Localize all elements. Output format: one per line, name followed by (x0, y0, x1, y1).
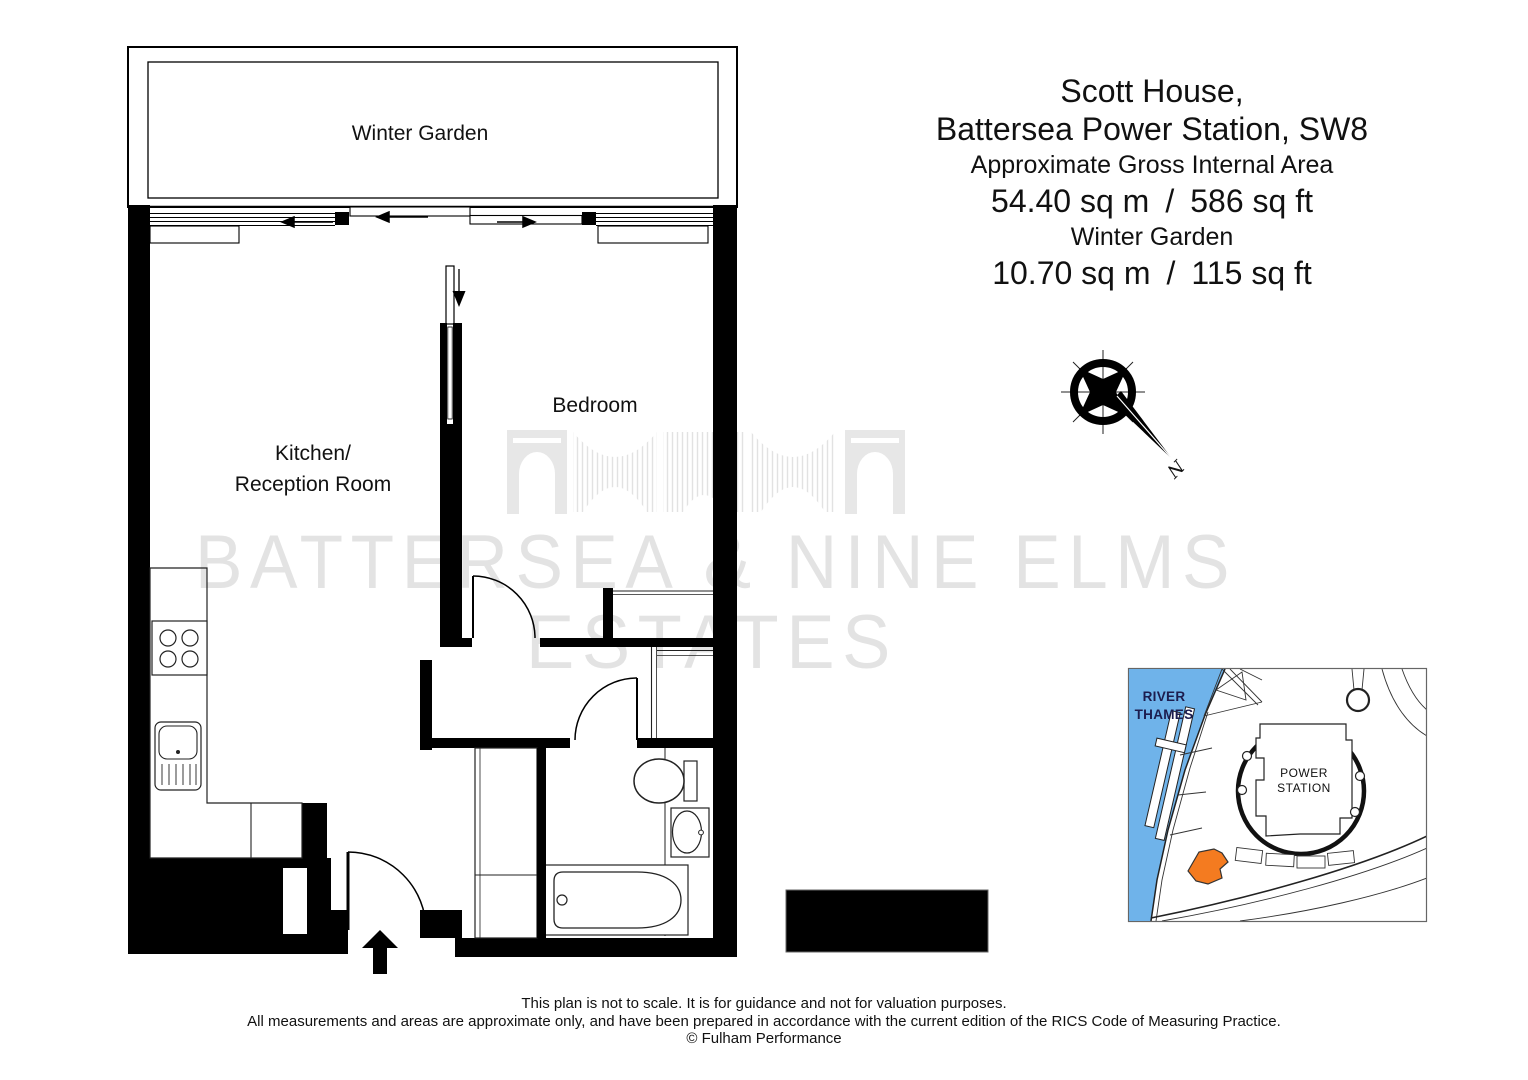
title-block: Scott House, Battersea Power Station, SW… (852, 72, 1452, 292)
property-title-line1: Scott House, (852, 72, 1452, 110)
station-label-line1: POWER (1280, 766, 1328, 780)
hob-icon (152, 621, 207, 675)
bedroom-room-label: Bedroom (495, 394, 695, 418)
toilet-icon (634, 759, 697, 803)
winter-garden-area-value: 10.70 sq m / 115 sq ft (852, 254, 1452, 292)
disclaimer-line2: All measurements and areas are approxima… (0, 1013, 1528, 1031)
property-title-line2: Battersea Power Station, SW8 (852, 110, 1452, 148)
disclaimer-footer: This plan is not to scale. It is for gui… (0, 995, 1528, 1048)
gross-area-value: 54.40 sq m / 586 sq ft (852, 182, 1452, 220)
copyright-line: © Fulham Performance (0, 1030, 1528, 1048)
hall-wardrobe (475, 748, 546, 938)
bathtub-icon (545, 865, 688, 935)
location-map: RIVER THAMES POWER STATION (1129, 669, 1428, 922)
power-station-footprint (1256, 724, 1352, 836)
kitchen-area (150, 568, 302, 858)
basin-icon (671, 808, 709, 857)
gross-area-label: Approximate Gross Internal Area (852, 148, 1452, 182)
station-label-line2: STATION (1277, 781, 1331, 795)
bathroom-door (575, 678, 637, 740)
bathroom (420, 660, 713, 938)
kitchen-label-line1: Kitchen/ (193, 438, 433, 469)
winter-garden-area-label: Winter Garden (852, 220, 1452, 254)
river-label-line2: THAMES (1135, 707, 1194, 722)
entrance-arrow-icon (362, 930, 398, 974)
bedroom-pocket-door (440, 266, 466, 638)
winter-garden-room-label: Winter Garden (270, 122, 570, 146)
kitchen-room-label: Kitchen/ Reception Room (193, 438, 433, 500)
page: { "title_block": { "line1": "Scott House… (0, 0, 1528, 1080)
disclaimer-line1: This plan is not to scale. It is for gui… (0, 995, 1528, 1013)
compass-rose: N (1061, 350, 1189, 482)
entrance (348, 852, 426, 974)
kitchen-label-line2: Reception Room (193, 469, 433, 500)
river-label-line1: RIVER (1143, 689, 1186, 704)
compass-north-label: N (1161, 455, 1189, 483)
adjacent-core-block (786, 890, 988, 952)
watermark-logo (507, 430, 905, 514)
window-band (128, 207, 737, 244)
sink-icon (155, 722, 201, 790)
